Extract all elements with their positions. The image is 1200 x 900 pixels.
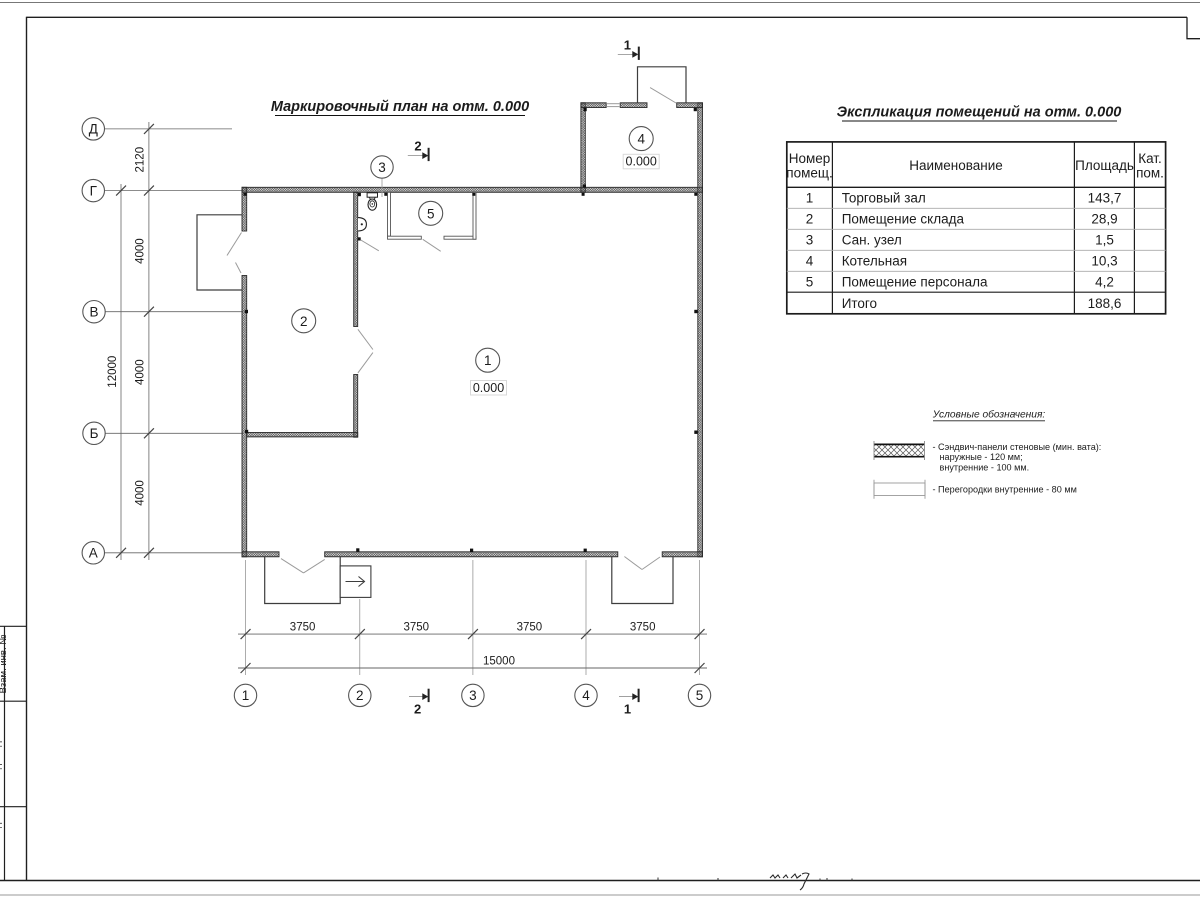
svg-text:1: 1 [242, 688, 250, 703]
svg-text:143,7: 143,7 [1088, 190, 1122, 205]
svg-text:3750: 3750 [630, 622, 656, 634]
svg-text:- Перегородки внутренние - 80: - Перегородки внутренние - 80 мм [933, 484, 1077, 494]
svg-text:А: А [89, 546, 98, 561]
svg-text:внутренние - 100 мм.: внутренние - 100 мм. [940, 462, 1030, 472]
svg-text:помещ.: помещ. [786, 166, 832, 181]
svg-text:Подп. и дата: Подп. и дата [0, 727, 2, 780]
svg-text:1: 1 [624, 702, 631, 717]
svg-text:4000: 4000 [135, 238, 147, 264]
svg-text:12000: 12000 [107, 356, 119, 388]
svg-text:Маркировочный план на отм. 0.0: Маркировочный план на отм. 0.000 [271, 99, 529, 115]
svg-text:пом.: пом. [1136, 166, 1164, 181]
svg-text:Д: Д [89, 122, 98, 137]
svg-text:2120: 2120 [135, 147, 147, 173]
svg-text:0.000: 0.000 [626, 155, 657, 169]
svg-text:1,5: 1,5 [1095, 232, 1114, 247]
svg-text:4: 4 [582, 688, 590, 703]
svg-text:5: 5 [696, 688, 704, 703]
svg-text:Инв. № подл.: Инв. № подл. [0, 815, 2, 871]
svg-text:3: 3 [469, 688, 477, 703]
svg-text:10,3: 10,3 [1091, 253, 1117, 268]
svg-text:1: 1 [484, 353, 492, 368]
svg-text:2: 2 [300, 314, 308, 329]
svg-text:Экспликация помещений на отм.: Экспликация помещений на отм. 0.000 [837, 105, 1122, 121]
svg-text:- Сэндвич-панели стеновые (мин: - Сэндвич-панели стеновые (мин. вата): [933, 442, 1102, 452]
svg-text:0.000: 0.000 [473, 381, 504, 395]
svg-text:3750: 3750 [404, 622, 430, 634]
svg-text:Помещение склада: Помещение склада [842, 211, 965, 226]
svg-text:Номер: Номер [789, 151, 831, 166]
svg-text:4,2: 4,2 [1095, 274, 1114, 289]
svg-text:Г: Г [90, 183, 98, 198]
svg-text:3: 3 [806, 232, 814, 247]
svg-text:15000: 15000 [483, 655, 515, 667]
svg-text:28,9: 28,9 [1091, 211, 1117, 226]
svg-text:3750: 3750 [290, 622, 316, 634]
svg-text:2: 2 [414, 702, 421, 717]
svg-text:2: 2 [356, 688, 364, 703]
svg-text:наружные - 120 мм;: наружные - 120 мм; [940, 452, 1023, 462]
svg-text:188,6: 188,6 [1088, 296, 1122, 311]
svg-text:Б: Б [90, 426, 99, 441]
svg-text:4: 4 [637, 132, 645, 147]
svg-text:Итого: Итого [842, 296, 877, 311]
svg-text:3750: 3750 [517, 622, 543, 634]
svg-text:Взам. инв. №: Взам. инв. № [0, 635, 9, 694]
svg-text:Наименование: Наименование [909, 158, 1003, 173]
svg-text:2: 2 [414, 139, 421, 154]
svg-text:В: В [89, 305, 98, 320]
svg-text:Сан. узел: Сан. узел [842, 232, 902, 247]
svg-text:Кат.: Кат. [1138, 151, 1162, 166]
svg-text:4000: 4000 [135, 359, 147, 385]
svg-text:Площадь: Площадь [1075, 158, 1134, 173]
svg-text:1: 1 [624, 38, 631, 53]
svg-text:1: 1 [806, 190, 814, 205]
svg-text:2: 2 [806, 211, 814, 226]
svg-text:Торговый зал: Торговый зал [842, 190, 926, 205]
svg-text:5: 5 [806, 274, 814, 289]
svg-text:4: 4 [806, 253, 814, 268]
svg-text:3: 3 [378, 160, 386, 175]
svg-text:Условные обозначения:: Условные обозначения: [932, 409, 1046, 421]
svg-text:4000: 4000 [135, 480, 147, 506]
svg-text:5: 5 [427, 206, 435, 221]
svg-text:Помещение персонала: Помещение персонала [842, 274, 988, 289]
svg-text:Котельная: Котельная [842, 253, 907, 268]
